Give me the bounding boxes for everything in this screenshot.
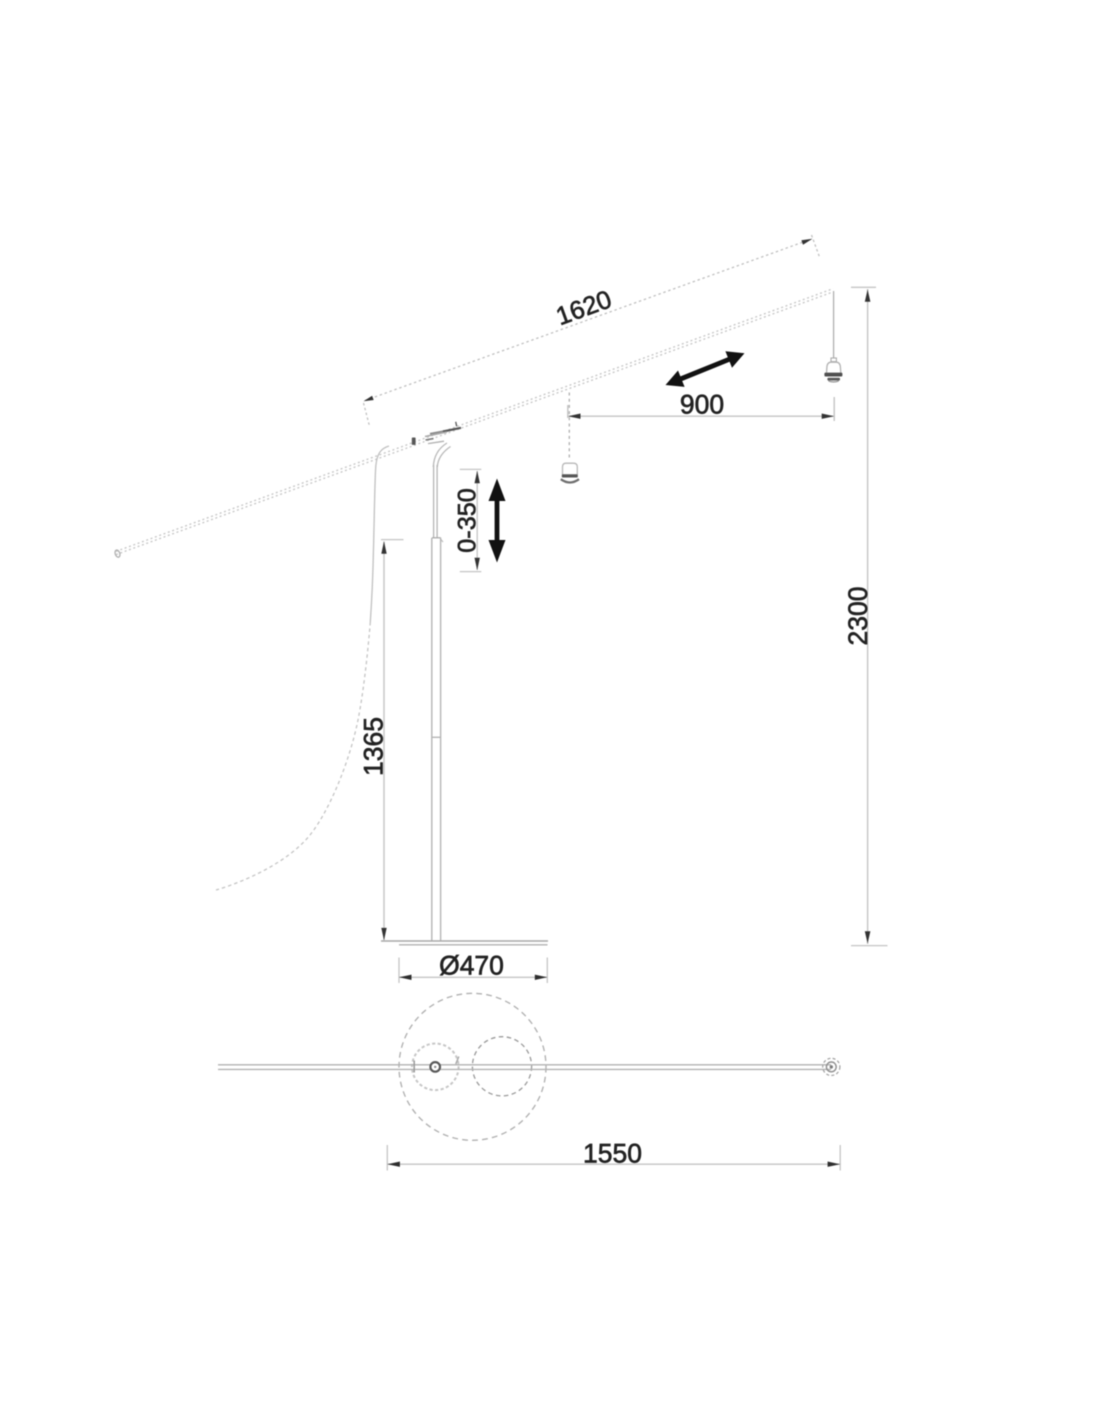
svg-text:Ø470: Ø470 — [439, 950, 504, 980]
svg-text:0-350: 0-350 — [454, 488, 482, 552]
svg-text:1365: 1365 — [359, 717, 389, 776]
svg-text:1550: 1550 — [583, 1138, 642, 1168]
svg-text:2300: 2300 — [843, 587, 873, 646]
svg-text:900: 900 — [680, 389, 724, 419]
svg-text:1620: 1620 — [553, 285, 616, 331]
